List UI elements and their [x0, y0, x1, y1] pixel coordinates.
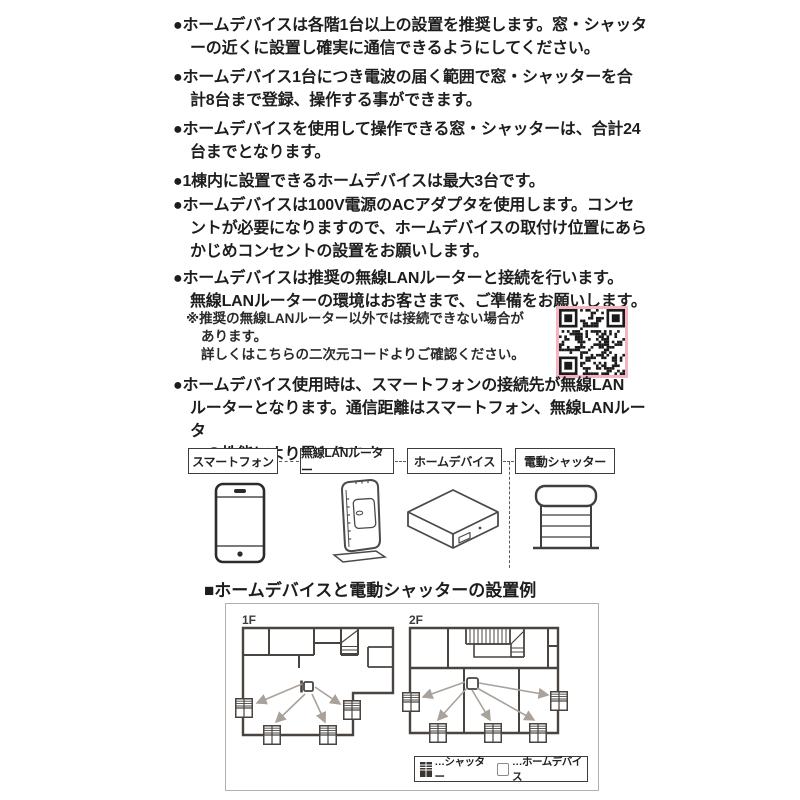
home-device-marker-2f — [467, 678, 478, 689]
document-page: ホームデバイスは各階1台以上の設置を推奨します。窓・シャッタ ーの近くに設置し確… — [0, 0, 800, 800]
floorplan-panel: 1F 2F — [225, 603, 599, 791]
electric-shutter-icon — [530, 484, 602, 558]
note-item-4: 1棟内に設置できるホームデバイスは最大3台です。 — [173, 170, 656, 193]
flow-connector — [395, 461, 406, 462]
note-item-3: ホームデバイスを使用して操作できる窓・シャッターは、合計24 台までとなります。 — [173, 118, 656, 164]
note-item-1: ホームデバイスは各階1台以上の設置を推奨します。窓・シャッタ ーの近くに設置し確… — [173, 14, 656, 60]
floor-label-2f: 2F — [409, 613, 423, 627]
note-item-5: ホームデバイスは100V電源のACアダプタを使用します。コンセ ントが必要になり… — [173, 194, 656, 263]
shutter-symbol — [430, 724, 447, 743]
qr-code-pattern — [559, 309, 625, 375]
home-device-icon — [405, 486, 502, 560]
shutter-symbol — [551, 692, 568, 711]
router-footnote: ※推奨の無線LANルーター以外では接続できない場合が あります。 詳しくはこちら… — [186, 310, 563, 364]
installation-example-heading: ■ホームデバイスと電動シャッターの設置例 — [204, 576, 536, 601]
note-item-2: ホームデバイス1台につき電波の届く範囲で窓・シャッターを合 計8台まで登録、操作… — [173, 66, 656, 112]
flow-separator-line — [509, 462, 510, 568]
shutter-symbol — [485, 724, 502, 743]
home-device-marker-1f — [304, 682, 313, 691]
shutter-symbol — [320, 726, 337, 745]
shutter-symbol — [264, 726, 281, 745]
shutter-symbol — [344, 701, 361, 720]
shutter-symbol — [236, 699, 253, 718]
legend-home-device-label: …ホームデバイス — [512, 754, 583, 784]
floorplan-1f — [243, 628, 393, 735]
qr-code — [556, 306, 628, 378]
shutter-symbol — [403, 693, 420, 712]
smartphone-icon — [213, 482, 267, 564]
legend-home-device-icon — [497, 763, 509, 776]
floorplan-2f — [410, 628, 558, 733]
stair-hatch-2f — [470, 628, 506, 644]
flow-label-router: 無線LANルーター — [300, 448, 394, 474]
legend-shutter-label: …シャッター — [435, 754, 489, 784]
shutter-symbol — [530, 724, 547, 743]
flow-connector — [279, 461, 299, 462]
signal-arrows-1f — [257, 684, 340, 722]
flow-label-home-device: ホームデバイス — [407, 448, 502, 474]
floorplan-legend: …シャッター …ホームデバイス — [414, 756, 588, 782]
flow-label-smartphone: スマートフォン — [188, 448, 278, 474]
signal-arrows-2f — [423, 682, 548, 720]
floor-label-1f: 1F — [242, 613, 256, 627]
flow-label-shutter: 電動シャッター — [515, 448, 615, 474]
wireless-router-icon — [312, 477, 392, 565]
legend-shutter-icon — [419, 761, 432, 778]
